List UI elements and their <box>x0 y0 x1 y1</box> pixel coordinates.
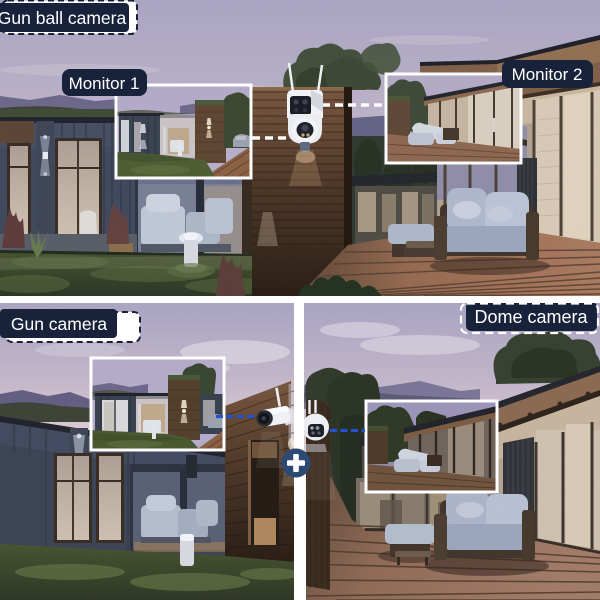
svg-text:Monitor 2: Monitor 2 <box>512 65 583 84</box>
svg-text:Monitor 1: Monitor 1 <box>69 74 140 93</box>
svg-text:Gun ball camera: Gun ball camera <box>0 8 126 28</box>
svg-text:Gun camera: Gun camera <box>11 314 108 334</box>
svg-text:Dome camera: Dome camera <box>474 307 588 327</box>
